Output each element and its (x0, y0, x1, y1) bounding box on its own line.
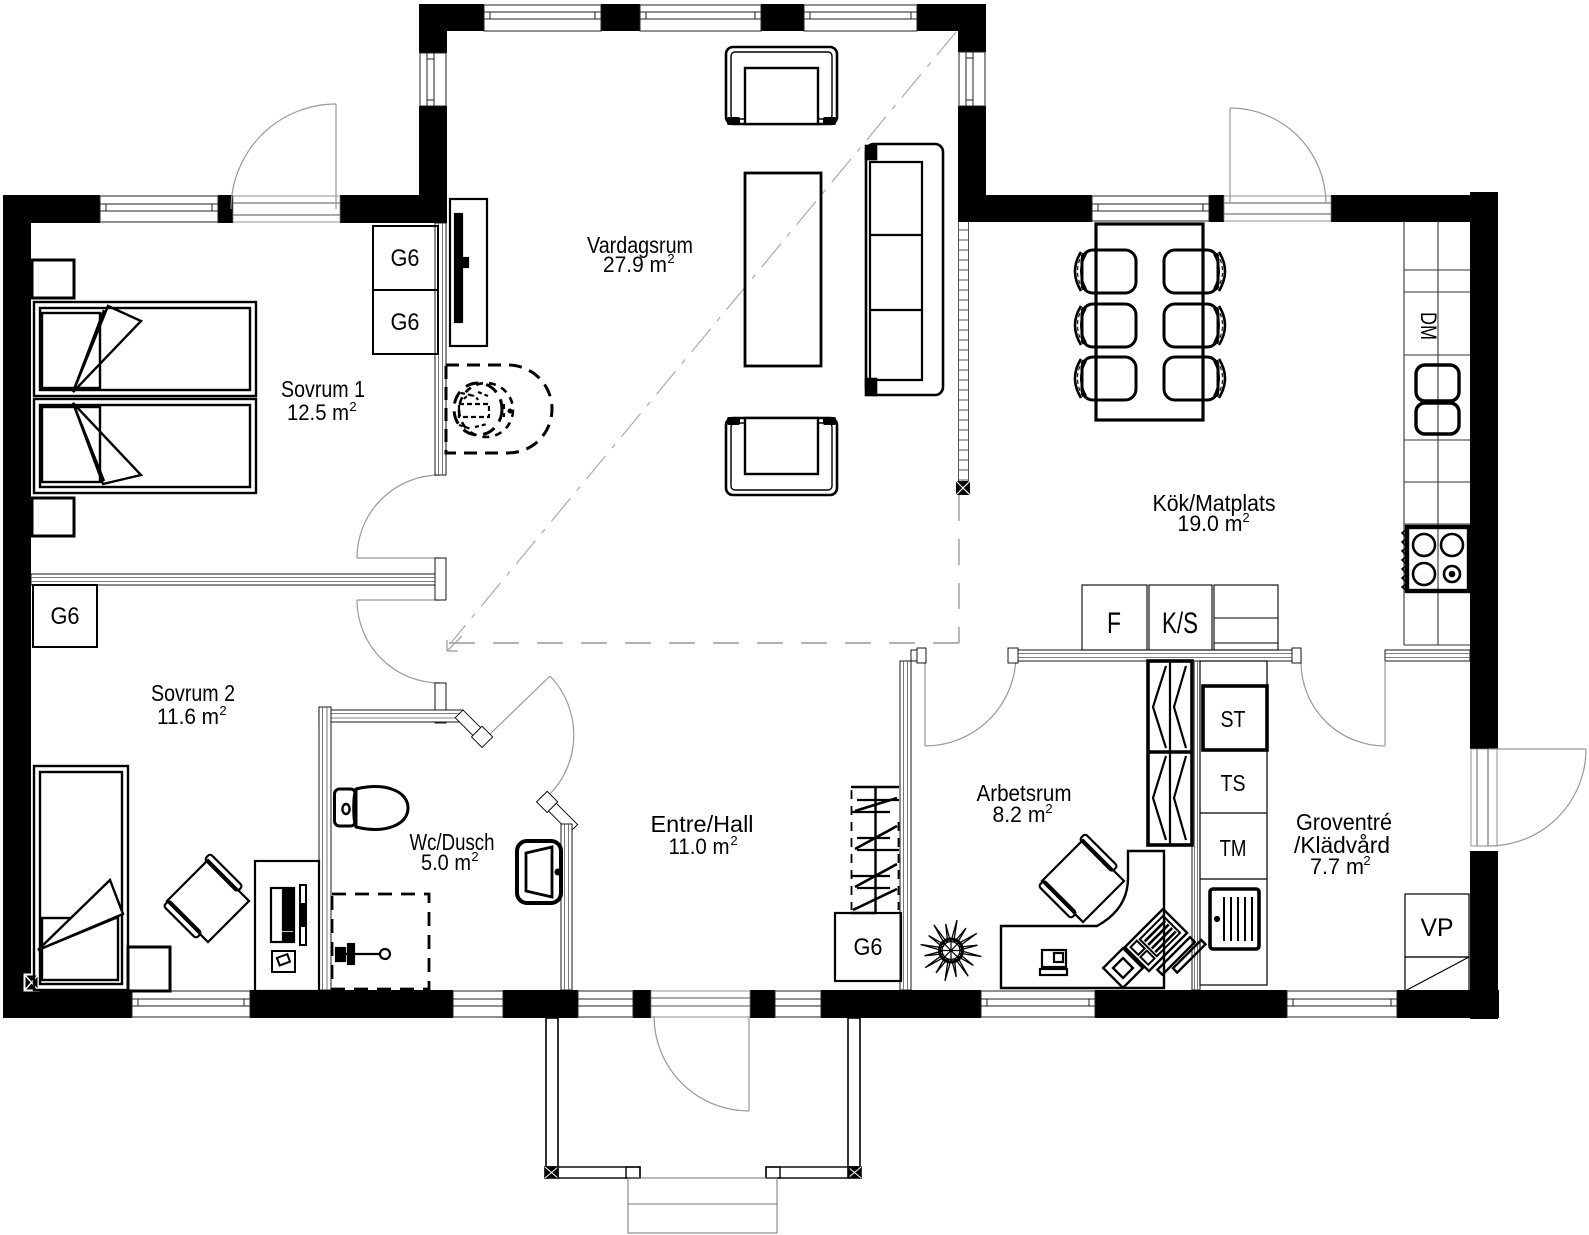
svg-text:2: 2 (471, 849, 478, 864)
svg-text:G6: G6 (391, 309, 420, 336)
svg-text:2: 2 (219, 703, 226, 718)
svg-text:2: 2 (349, 399, 356, 414)
svg-text:ST: ST (1221, 706, 1246, 732)
svg-text:8.2 m: 8.2 m (993, 802, 1046, 827)
svg-text:2: 2 (1045, 801, 1052, 816)
svg-text:2: 2 (730, 833, 737, 848)
svg-text:11.0 m: 11.0 m (669, 834, 730, 859)
svg-text:12.5 m: 12.5 m (287, 400, 349, 425)
svg-text:5.0 m: 5.0 m (421, 850, 471, 875)
svg-text:VP: VP (1421, 914, 1454, 942)
svg-text:TM: TM (1220, 835, 1247, 861)
svg-text:2: 2 (1242, 510, 1249, 525)
svg-text:7.7 m: 7.7 m (1310, 854, 1364, 879)
svg-text:G6: G6 (391, 245, 420, 272)
svg-text:DM: DM (1416, 312, 1441, 340)
svg-text:TS: TS (1221, 770, 1246, 796)
svg-text:19.0 m: 19.0 m (1178, 511, 1243, 536)
svg-text:F: F (1107, 607, 1121, 640)
svg-text:11.6 m: 11.6 m (157, 704, 219, 729)
svg-text:2: 2 (667, 251, 674, 266)
svg-text:2: 2 (1363, 853, 1370, 868)
svg-text:K/S: K/S (1162, 607, 1198, 640)
svg-text:G6: G6 (854, 934, 883, 961)
svg-text:27.9 m: 27.9 m (603, 252, 667, 277)
svg-text:G6: G6 (51, 603, 80, 630)
